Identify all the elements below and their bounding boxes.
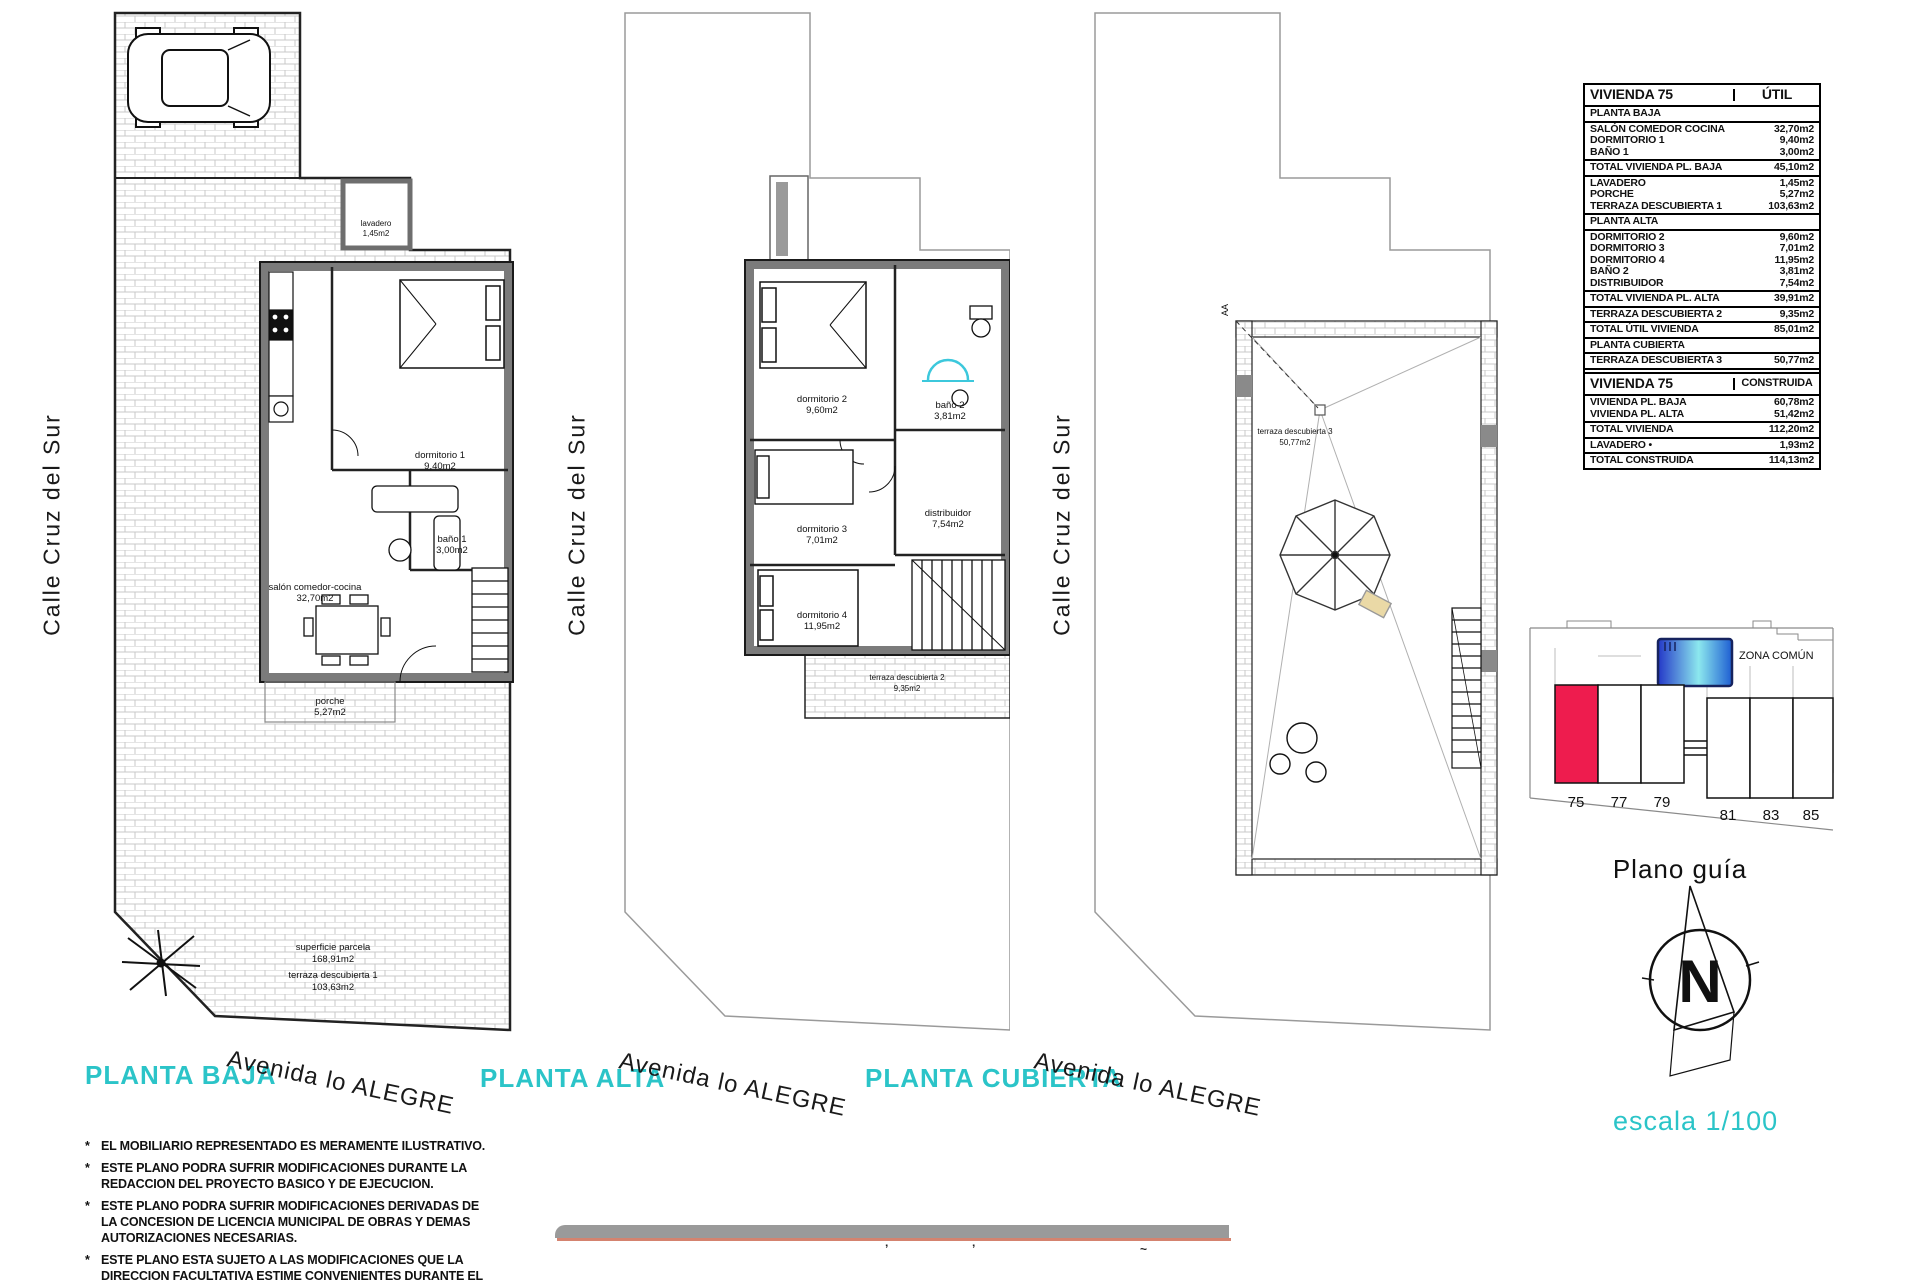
bed-icon (760, 282, 866, 368)
table-column-header: CONSTRUIDA (1735, 378, 1819, 390)
note-text: ESTE PLANO ESTA SUJETO A LAS MODIFICACIO… (101, 1252, 487, 1280)
north-compass: N (1630, 880, 1790, 1090)
room-area: 11,95m2 (804, 621, 840, 632)
table-row: VIVIENDA PL. ALTA51,42m2 (1590, 409, 1814, 421)
room-area: 9,40m2 (424, 461, 456, 472)
scale-label: escala 1/100 (1613, 1106, 1778, 1137)
table-section: PLANTA ALTA (1585, 215, 1819, 231)
room-label: dormitorio 3 (797, 524, 847, 535)
room-area: 5,27m2 (314, 707, 346, 718)
table-row-total: TERRAZA DESCUBIERTA 350,77m2 (1590, 355, 1814, 367)
table-row-total: TOTAL ÚTIL VIVIENDA85,01m2 (1590, 324, 1814, 336)
stairs-icon (472, 568, 508, 672)
floor-plan-planta-baja: lavadero 1,45m2 dormitorio 1 9,40m2 baño… (100, 10, 520, 1050)
note-bullet: * (85, 1160, 93, 1192)
note-item: * EL MOBILIARIO REPRESENTADO ES MERAMENT… (85, 1138, 487, 1154)
footer-mark: ’ (885, 1242, 888, 1256)
table-section: PLANTA BAJA (1585, 107, 1819, 123)
room-area: 3,00m2 (436, 545, 468, 556)
unit-number: 83 (1763, 807, 1780, 824)
footer-mark: ~ (1140, 1242, 1147, 1256)
note-bullet: * (85, 1252, 93, 1280)
note-item: * ESTE PLANO PODRA SUFRIR MODIFICACIONES… (85, 1198, 487, 1246)
unit-row-right (1707, 698, 1833, 798)
note-bullet: * (85, 1198, 93, 1246)
north-letter: N (1678, 948, 1721, 1015)
pool-icon (1658, 639, 1732, 686)
footer-bar (555, 1225, 1229, 1238)
table-column-header: ÚTIL (1735, 89, 1819, 101)
table-row: TERRAZA DESCUBIERTA 1103,63m2 (1590, 201, 1814, 213)
note-item: * ESTE PLANO PODRA SUFRIR MODIFICACIONES… (85, 1160, 487, 1192)
table-row: PORCHE5,27m2 (1590, 189, 1814, 201)
unit-number: 77 (1611, 794, 1628, 811)
zona-comun-label: ZONA COMÚN (1739, 649, 1814, 662)
bed-icon (755, 450, 853, 504)
room-area: 168,91m2 (312, 954, 354, 965)
note-text: ESTE PLANO PODRA SUFRIR MODIFICACIONES D… (101, 1160, 487, 1192)
room-label: dormitorio 4 (797, 610, 847, 621)
table-row: DORMITORIO 19,40m2 (1590, 135, 1814, 147)
table-row-total: TOTAL VIVIENDA PL. BAJA45,10m2 (1590, 162, 1814, 174)
room-label: salón comedor-cocina (269, 582, 363, 593)
bed-icon (400, 280, 504, 368)
room-area: 103,63m2 (312, 982, 354, 993)
area-table-util: VIVIENDA 75 ÚTIL PLANTA BAJA SALÓN COMED… (1583, 83, 1821, 385)
room-label: terraza descubierta 2 (869, 673, 945, 682)
table-row-total: TOTAL VIVIENDA PL. ALTA39,91m2 (1590, 293, 1814, 305)
room-area: 3,81m2 (934, 411, 966, 422)
unit-number: 79 (1654, 794, 1671, 811)
street-label-calle-cruz-del-sur: Calle Cruz del Sur (564, 360, 591, 690)
room-label: baño 1 (437, 534, 466, 545)
car-icon (128, 28, 270, 127)
stairs-icon (1452, 608, 1481, 768)
table-row: VIVIENDA PL. BAJA60,78m2 (1590, 397, 1814, 409)
table-row: BAÑO 23,81m2 (1590, 266, 1814, 278)
room-area: 32,70m2 (297, 593, 334, 604)
room-label: superficie parcela (296, 942, 371, 953)
table-row: BAÑO 13,00m2 (1590, 147, 1814, 159)
bed-icon (758, 570, 858, 646)
room-label: dormitorio 1 (415, 450, 465, 461)
unit-number: 75 (1568, 794, 1585, 811)
room-label: lavadero (361, 219, 392, 228)
room-label: dormitorio 2 (797, 394, 847, 405)
note-text: EL MOBILIARIO REPRESENTADO ES MERAMENTE … (101, 1138, 485, 1154)
table-row-total: TOTAL CONSTRUIDA114,13m2 (1590, 455, 1814, 467)
table-row: DISTRIBUIDOR7,54m2 (1590, 278, 1814, 290)
unit-number: 81 (1720, 807, 1737, 824)
room-label: distribuidor (925, 508, 971, 519)
room-area: 1,45m2 (363, 229, 390, 238)
note-bullet: * (85, 1138, 93, 1154)
room-area: 50,77m2 (1279, 438, 1311, 447)
unit-75-highlighted (1555, 685, 1598, 783)
section-marker: AA (1220, 304, 1230, 316)
street-label-calle-cruz-del-sur: Calle Cruz del Sur (1049, 360, 1076, 690)
table-row-total: TERRAZA DESCUBIERTA 29,35m2 (1590, 309, 1814, 321)
room-label: terraza descubierta 1 (288, 970, 377, 981)
note-text: ESTE PLANO PODRA SUFRIR MODIFICACIONES D… (101, 1198, 487, 1246)
room-area: 9,35m2 (894, 684, 921, 693)
plan-sheet: lavadero 1,45m2 dormitorio 1 9,40m2 baño… (0, 0, 1920, 1280)
parcel-boundary (1095, 13, 1490, 1030)
footer-mark: ’ (972, 1242, 975, 1256)
room-area: 9,60m2 (806, 405, 838, 416)
stairs-icon (912, 560, 1005, 650)
table-row-total: LAVADERO •1,93m2 (1590, 440, 1814, 452)
table-section: PLANTA CUBIERTA (1585, 339, 1819, 355)
street-label-calle-cruz-del-sur: Calle Cruz del Sur (39, 360, 66, 690)
room-label: baño 2 (935, 400, 964, 411)
room-area: 7,01m2 (806, 535, 838, 546)
table-title: VIVIENDA 75 (1585, 378, 1735, 390)
room-area: 7,54m2 (932, 519, 964, 530)
notes-block: * EL MOBILIARIO REPRESENTADO ES MERAMENT… (85, 1138, 487, 1280)
room-label: terraza descubierta 3 (1257, 427, 1333, 436)
table-row-total: TOTAL VIVIENDA112,20m2 (1590, 424, 1814, 436)
unit-number: 85 (1803, 807, 1820, 824)
room-label: porche (315, 696, 344, 707)
floor-plan-planta-cubierta: AA terraza descubierta 3 50,77m2 (1080, 10, 1500, 1050)
note-item: * ESTE PLANO ESTA SUJETO A LAS MODIFICAC… (85, 1252, 487, 1280)
footer-accent-line (557, 1238, 1231, 1241)
floor-plan-planta-alta: dormitorio 2 9,60m2 baño 2 3,81m2 distri… (610, 10, 1010, 1050)
site-key-plan: ZONA COMÚN 75 77 79 81 83 85 Plano guía (1515, 618, 1845, 890)
unit-row-left (1555, 685, 1684, 783)
dining-table-icon (304, 595, 390, 665)
table-row: DORMITORIO 37,01m2 (1590, 243, 1814, 255)
table-title: VIVIENDA 75 (1585, 89, 1735, 101)
area-table-construida: VIVIENDA 75 CONSTRUIDA VIVIENDA PL. BAJA… (1583, 372, 1821, 470)
kitchen-fixtures-icon (269, 272, 293, 422)
